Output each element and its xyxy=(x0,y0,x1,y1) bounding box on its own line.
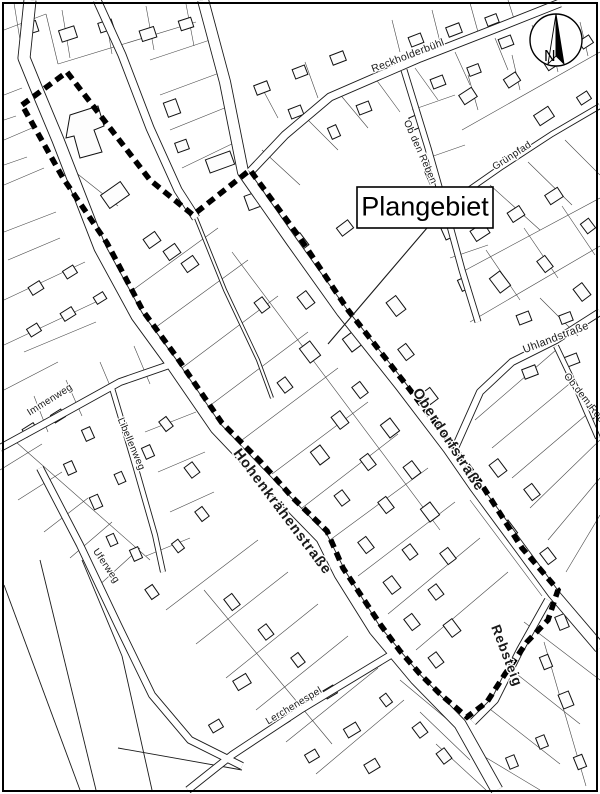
north-compass: N xyxy=(530,14,582,66)
compass-north-letter: N xyxy=(544,48,556,65)
plangebiet-label: Plangebiet xyxy=(361,192,489,222)
map-page: PlangebietReckholderbühlOb den RebenGrün… xyxy=(0,0,600,794)
map-canvas: PlangebietReckholderbühlOb den RebenGrün… xyxy=(0,0,600,794)
